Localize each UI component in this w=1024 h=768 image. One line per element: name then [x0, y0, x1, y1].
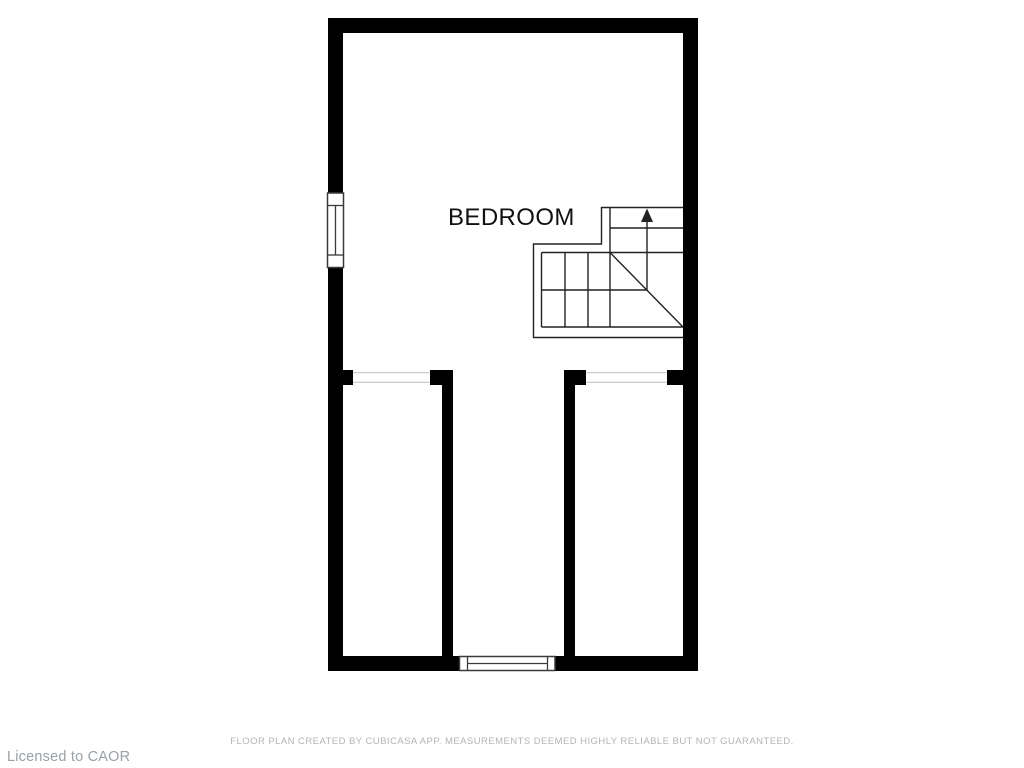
- window-icon: [328, 193, 344, 268]
- interior-wall-right-vertical: [564, 370, 575, 656]
- interior-wall-left-vertical: [442, 370, 453, 656]
- wall-opening-left: [353, 373, 430, 383]
- window-icon: [460, 657, 556, 671]
- exterior-walls: [328, 18, 698, 671]
- license-text: Licensed to CAOR: [7, 748, 130, 766]
- wall-opening-right: [586, 373, 667, 383]
- interior-wall-left-stub: [343, 370, 353, 385]
- room-label-bedroom: BEDROOM: [448, 205, 568, 231]
- floor-plan-canvas: [0, 0, 1024, 768]
- interior-walls: [343, 370, 683, 656]
- footer-disclaimer: FLOOR PLAN CREATED BY CUBICASA APP. MEAS…: [0, 735, 1024, 749]
- stair-direction-arrow: [641, 209, 653, 291]
- interior-wall-right-stub: [667, 370, 683, 385]
